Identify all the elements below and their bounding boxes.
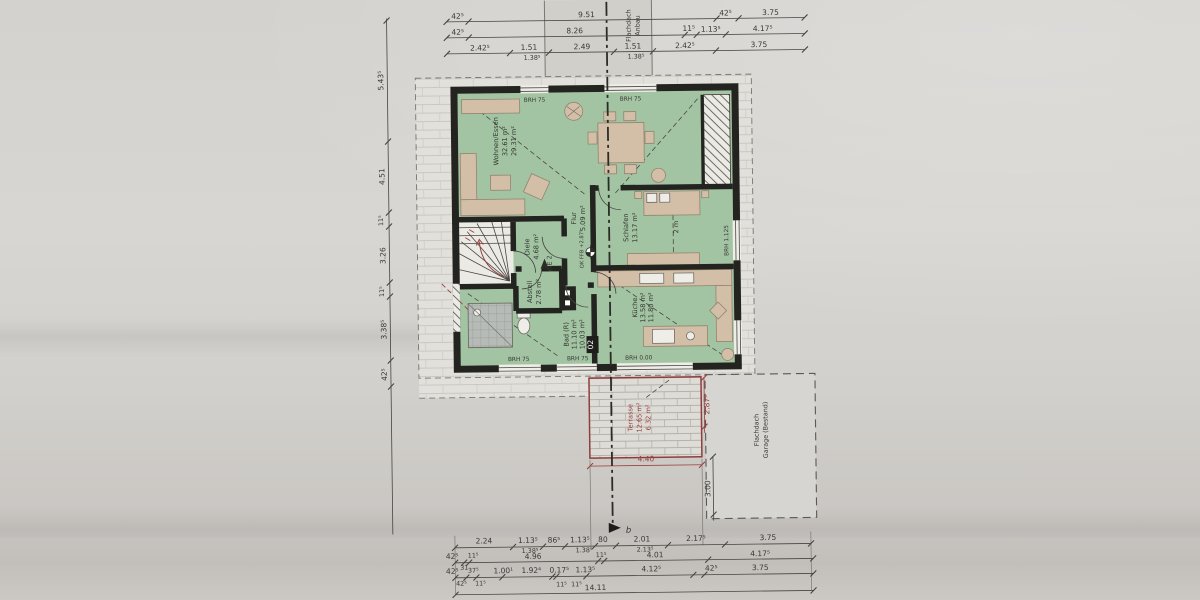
plant-kitchen	[722, 348, 734, 360]
kueche-name: Küche	[631, 298, 639, 318]
anbau-label-line2: Anbau	[634, 15, 642, 36]
dim-text: 11⁵	[556, 580, 567, 588]
brh1125-right: BRH 1.125	[724, 225, 730, 256]
dim-text: 42⁵	[456, 580, 467, 588]
garage-label-line1: Flachdach	[752, 414, 760, 447]
dim-text: 2.49	[573, 42, 590, 51]
dim-text: 1.13⁵	[575, 565, 595, 574]
garage-label-line2: Garage (Bestand)	[761, 402, 770, 459]
dim-text: 37⁵	[468, 566, 479, 574]
brh75-top-left: BRH 75	[524, 98, 546, 104]
dim-text: 1.38⁵	[524, 54, 541, 62]
dim-text: 1.51	[521, 43, 538, 52]
dim-text: 42⁵	[446, 567, 459, 576]
flur-name: Flur	[570, 212, 578, 225]
abstell-name: Abstell	[526, 280, 534, 303]
dim-text: 3.38⁵	[379, 320, 388, 340]
abstell-area1: 2.78 m²	[535, 278, 543, 304]
brh75-bottom-mid: BRH 75	[567, 356, 589, 362]
wohnen-area2: 29.31 m²	[510, 126, 518, 156]
dim-text: 3.26	[378, 247, 387, 264]
terrace-height-dim: 2.87⁵	[702, 395, 711, 415]
brh000-bottom: BRH 0.00	[625, 355, 652, 361]
wohnen-name: Wohnen/Essen	[492, 117, 501, 165]
plant-living	[651, 168, 665, 182]
kitchen-counter	[598, 269, 732, 287]
sofa-seat	[461, 199, 525, 216]
dim-text: 3.75	[750, 40, 767, 49]
sideboard	[462, 99, 520, 114]
bad-area2: 10.03 m²	[578, 319, 586, 349]
badge-number: 02	[586, 340, 595, 350]
dim-text: 3.75	[752, 563, 769, 572]
dim-text: 1.92⁴	[521, 566, 541, 575]
dim-text: 4.96	[525, 552, 542, 561]
section-arrow-icon	[609, 523, 621, 533]
ok-ffb-label: OK FFB +2.87⁵	[579, 230, 585, 268]
pouf	[490, 175, 510, 190]
dim-text: 2.01	[634, 534, 651, 543]
dim-text: 42⁵	[719, 8, 732, 17]
dim-text: 3.75	[762, 8, 779, 17]
dim-text: 2.42⁵	[470, 43, 490, 52]
schlafen-name: Schlafen	[622, 213, 630, 242]
dim-text: 1.38⁵	[628, 52, 645, 60]
hatched-shaft	[702, 94, 731, 186]
dining-table	[598, 122, 644, 163]
wohnen-area1: 32.61 m²	[501, 126, 509, 156]
existing-wall-hatch	[453, 284, 461, 332]
dim-text: 80	[598, 535, 608, 544]
dim-text: 4.17⁵	[750, 549, 770, 558]
dim-text: 42⁵	[446, 552, 459, 561]
schlafen-area1: 13.17 m²	[631, 212, 639, 242]
dim-text: 11⁵	[468, 551, 479, 559]
brh75-top-right: BRH 75	[620, 96, 642, 102]
dim-text: 4.12⁵	[641, 564, 661, 573]
dimension-chain-left: 5.43⁵ 4.51 11⁵ 3.26 11⁵ 3.38⁵ 42⁵	[375, 18, 396, 535]
terrace-area1: 12.65 m²	[635, 402, 643, 432]
schlafen-2m: 2 m	[672, 221, 680, 234]
dim-total-text: 14.11	[585, 583, 607, 592]
terrace-name: Terrasse	[626, 404, 634, 432]
dim-text: 1.13⁵	[518, 536, 538, 545]
door-badge: 02	[586, 336, 599, 353]
terrace-area2: 6.32 m²	[644, 404, 652, 430]
dim-text: 42⁵	[451, 12, 464, 21]
dim-text: 11⁵	[596, 551, 607, 559]
dim-text: 8.26	[566, 26, 583, 35]
anbau-label-line1: Flachdach	[624, 9, 632, 42]
dim-text: 11⁵	[378, 286, 386, 297]
dim-text: 11⁵	[571, 580, 582, 588]
dim-text: 0.17⁵	[549, 565, 569, 574]
dim-text: 1.51	[624, 41, 641, 50]
dim-text: 42⁵	[380, 368, 389, 381]
dim-text: 1.13⁵	[701, 25, 721, 34]
dim-text: 1.38⁵	[576, 546, 593, 554]
wc	[518, 318, 530, 334]
dim-text: 42⁵	[451, 28, 464, 37]
floor-plan-drawing: Flachdach Anbau Flachdach Garage (Bestan…	[0, 0, 1200, 600]
dim-text: 2.42⁵	[675, 41, 695, 50]
dim-text: 2.17⁵	[686, 534, 706, 543]
diele-area1: 4.68 m²	[532, 233, 540, 259]
section-letter: b	[626, 526, 632, 536]
terrace: Terrasse 12.65 m² 6.32 m² 4.40 2.87⁵	[586, 375, 712, 470]
building: WE 2 OK FFB +2.87⁵ 02 Wohnen/Essen 32.61…	[439, 83, 742, 374]
dim-text: 11⁵	[475, 579, 486, 587]
dim-text: 42⁵	[705, 564, 718, 573]
brh75-bottom-left: BRH 75	[508, 357, 530, 363]
dim-text: 4.17⁵	[753, 24, 773, 33]
we2-label: WE 2	[545, 255, 553, 272]
dim-text: 9.51	[578, 10, 595, 19]
dim-text: 1.00¹	[493, 566, 513, 575]
kueche-area2: 11.80 m²	[647, 292, 655, 322]
dim-text: 5.43⁵	[376, 71, 385, 91]
dim-text: 86⁵	[548, 536, 561, 545]
terrace-width-dim: 4.40	[638, 454, 655, 463]
bad-name: Bad (R)	[562, 322, 570, 347]
garage-side-dim: 3.00	[703, 480, 712, 497]
dim-text: 11⁵	[377, 215, 385, 226]
dim-text: 3.75	[760, 533, 777, 542]
flur-area1: 5.09 m²	[579, 205, 587, 231]
dim-text: 4.51	[377, 168, 386, 185]
dim-text: 1.13⁵	[570, 535, 590, 544]
garage-outline: Flachdach Garage (Bestand) 3.00	[702, 373, 817, 520]
dim-text: 11⁵	[682, 24, 695, 33]
dim-text: 2.24	[476, 536, 493, 545]
dim-text: 4.01	[647, 550, 664, 559]
diele-name: Diele	[523, 238, 531, 255]
